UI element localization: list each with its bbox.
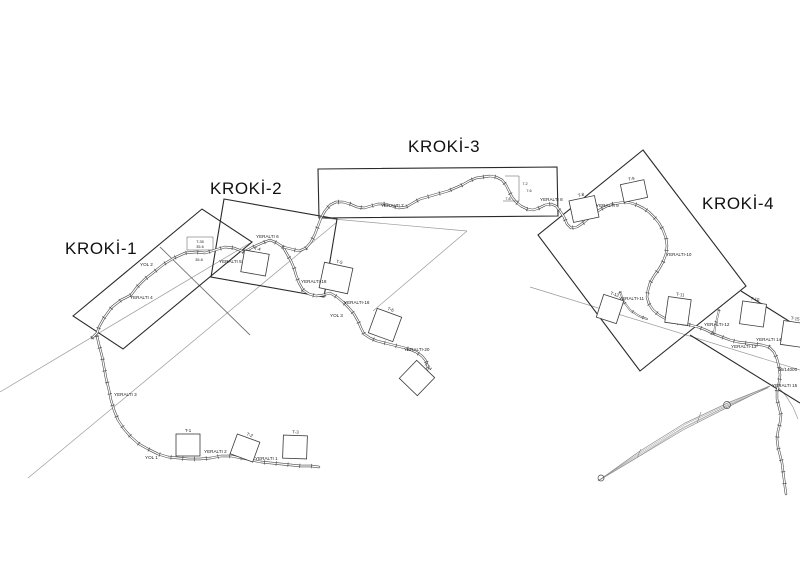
structure-box bbox=[780, 321, 800, 348]
structure-T-10: T-10 bbox=[740, 295, 768, 327]
map-label: YERALTI-13 bbox=[731, 344, 757, 349]
road-south-branch-core bbox=[283, 247, 428, 376]
map-label: YERALTI 3 bbox=[114, 392, 137, 397]
map-label: YERALTI-20 bbox=[404, 347, 430, 352]
road-south-branch-casing bbox=[283, 247, 428, 376]
structure-label: T-9 bbox=[628, 176, 636, 182]
spindle-outline bbox=[598, 386, 770, 481]
structure-label: T-4 bbox=[254, 246, 262, 252]
kroki-frame-title-3: KROKİ-3 bbox=[408, 137, 480, 156]
structure-label: T-10 bbox=[750, 296, 760, 302]
map-label: YERALTI-18 bbox=[301, 279, 327, 284]
map-label: YERALTI 1 bbox=[255, 456, 278, 461]
map-label: YOL 2 bbox=[140, 262, 153, 267]
map-label: YERALTI 7 bbox=[381, 203, 404, 208]
dimension-text: 35.6 bbox=[196, 245, 203, 249]
structure-box bbox=[665, 297, 691, 326]
structure-box bbox=[620, 180, 647, 203]
structure-box bbox=[740, 301, 767, 327]
spindle-inner-line bbox=[599, 387, 769, 480]
reference-line bbox=[530, 287, 800, 370]
survey-plan-page: KROKİ-1KROKİ-2KROKİ-3KROKİ-4T-1T-2T-3T-4… bbox=[0, 0, 800, 566]
kroki-frame-title-2: KROKİ-2 bbox=[210, 179, 282, 198]
structure-T-9: T-9 bbox=[619, 174, 647, 202]
structure-box bbox=[241, 250, 269, 276]
map-label: YOL 1 bbox=[145, 455, 158, 460]
map-label: YOL 3 bbox=[330, 313, 343, 318]
spindle-inner-line bbox=[599, 386, 769, 480]
road-main-northeast-station-ticks bbox=[283, 176, 786, 494]
structure-box bbox=[176, 434, 200, 456]
structure-T-5: T-5 bbox=[319, 256, 354, 293]
map-label: YERALTI 15 bbox=[772, 383, 798, 388]
kroki-frames: KROKİ-1KROKİ-2KROKİ-3KROKİ-4 bbox=[65, 137, 800, 403]
structure-label: T-3 bbox=[292, 429, 299, 434]
structure-T-15: T-15 bbox=[780, 315, 800, 348]
structure-label: T-15 bbox=[790, 316, 800, 322]
structure-T-1: T-1 bbox=[176, 428, 200, 456]
structure-box bbox=[368, 308, 401, 341]
map-label: YERALTI-16 bbox=[344, 300, 370, 305]
structure-box bbox=[319, 262, 353, 293]
reference-line bbox=[322, 218, 467, 231]
map-label: YERALTI 5 bbox=[219, 259, 242, 264]
road-main-northeast-casing bbox=[283, 176, 786, 494]
structure-label: T-5 bbox=[336, 259, 344, 265]
map-label: YERALTI-11 bbox=[619, 296, 645, 301]
spindle-inner-line bbox=[598, 388, 768, 481]
reference-line bbox=[373, 231, 467, 311]
map-label: YERALTI-12 bbox=[704, 322, 730, 327]
structure-T-3: T-3 bbox=[283, 429, 308, 459]
road-south-branch-station-ticks bbox=[283, 247, 428, 376]
site-plan-svg: KROKİ-1KROKİ-2KROKİ-3KROKİ-4T-1T-2T-3T-4… bbox=[0, 0, 800, 566]
kroki-frame-title-1: KROKİ-1 bbox=[65, 239, 137, 258]
structure-label: T-8 bbox=[577, 192, 585, 198]
structure-label: T-1 bbox=[185, 428, 192, 433]
structure-box bbox=[283, 435, 308, 459]
kroki-frame-title-4: KROKİ-4 bbox=[702, 194, 774, 213]
structure-T-6: T-6 bbox=[368, 303, 403, 342]
dimension-text: 35.8 bbox=[195, 258, 202, 262]
map-label: YERALTI-10 bbox=[666, 252, 692, 257]
structure-T-24: T-24 bbox=[399, 356, 439, 396]
map-label: YERALTI 14 bbox=[756, 337, 782, 342]
dimension-text: T-35 bbox=[196, 240, 204, 244]
dimension-text: 7.2 bbox=[522, 182, 527, 186]
road-main-northeast-core bbox=[283, 176, 786, 494]
dimension-text: 7.6 bbox=[526, 189, 531, 193]
structure-T-11: T-11 bbox=[665, 291, 692, 326]
structure-box bbox=[569, 196, 599, 223]
map-label: 16/14000 bbox=[778, 367, 798, 372]
kroki-frame-3 bbox=[318, 167, 558, 218]
map-label: YERALTI 2 bbox=[204, 449, 227, 454]
map-label: YERALTI 9 bbox=[596, 203, 619, 208]
map-label: YERALTI 6 bbox=[256, 234, 279, 239]
structure-T-8: T-8 bbox=[568, 190, 599, 223]
dimension-text: 7.8 bbox=[505, 197, 510, 201]
structure-T-4: T-4 bbox=[241, 244, 270, 276]
spindle-structure bbox=[598, 386, 770, 481]
map-label: YERALTI 8 bbox=[540, 197, 563, 202]
structure-label: T-11 bbox=[676, 292, 686, 298]
map-label: YERALTI 4 bbox=[130, 295, 153, 300]
